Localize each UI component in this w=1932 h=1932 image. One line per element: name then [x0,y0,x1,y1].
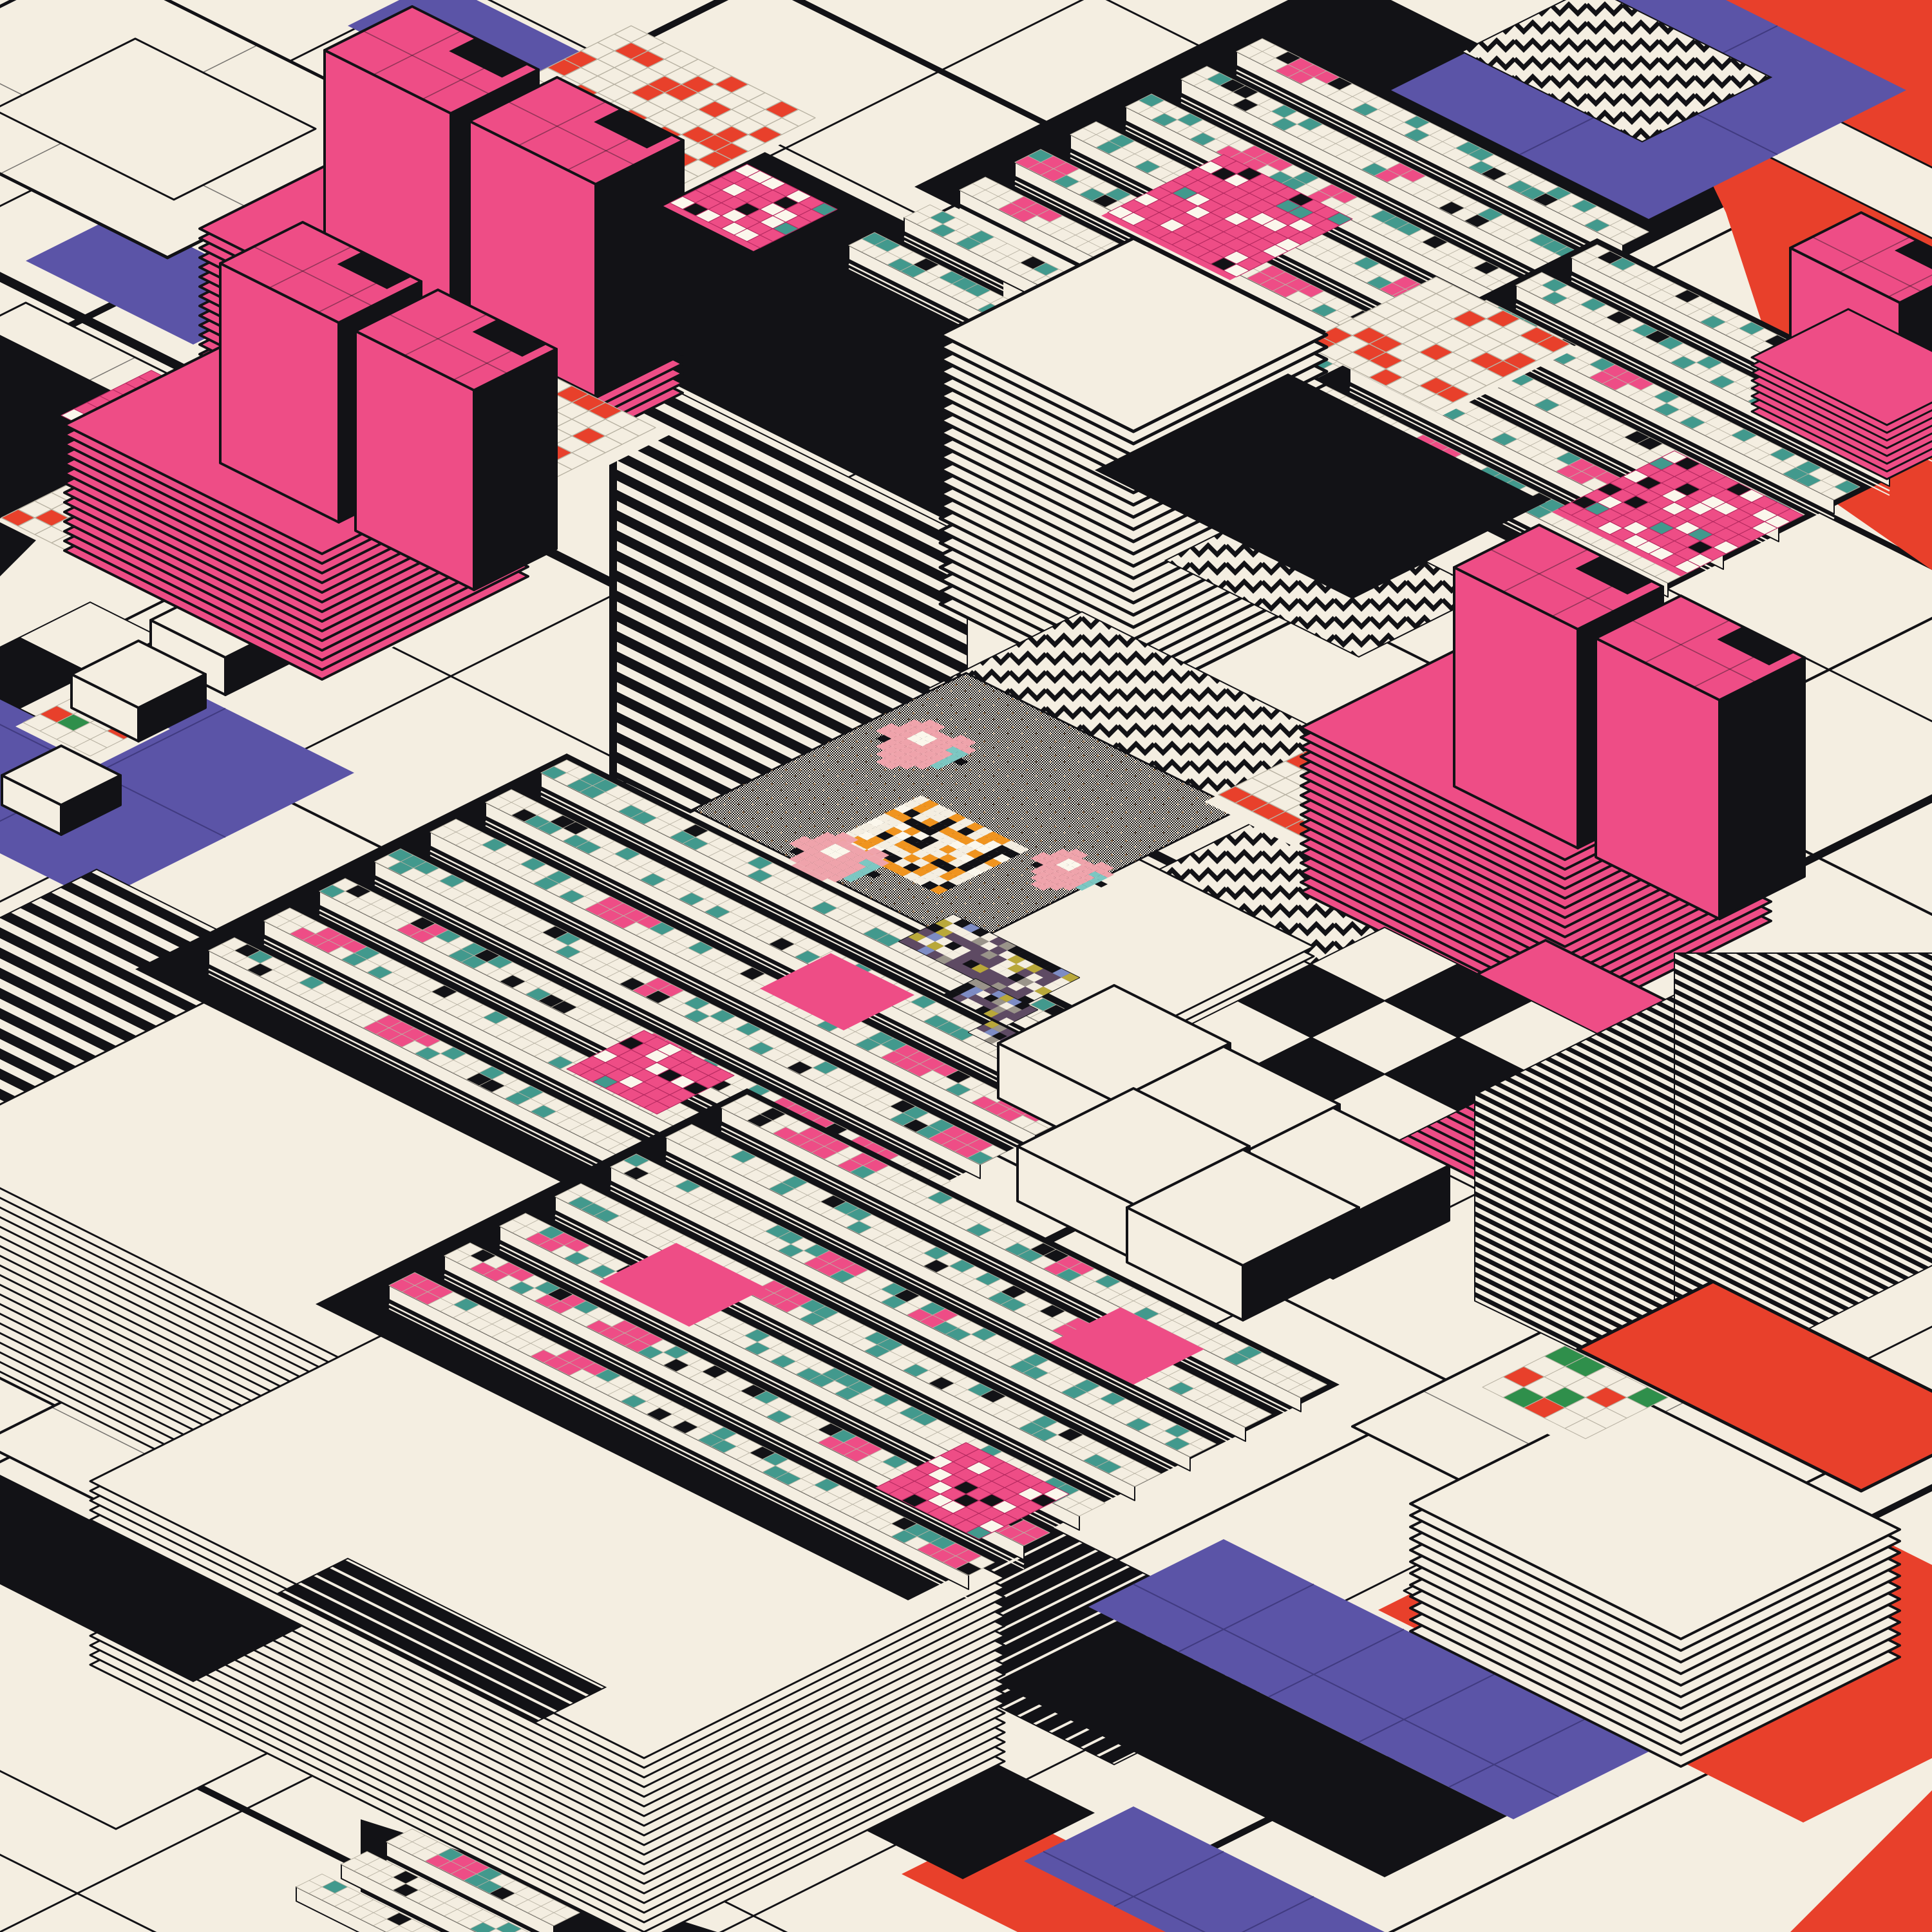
generative-artwork-canvas [0,0,1932,1932]
pink-tower-b2 [355,290,556,590]
pink-tower-c2 [1596,596,1804,919]
artwork-stage [0,0,1932,1932]
